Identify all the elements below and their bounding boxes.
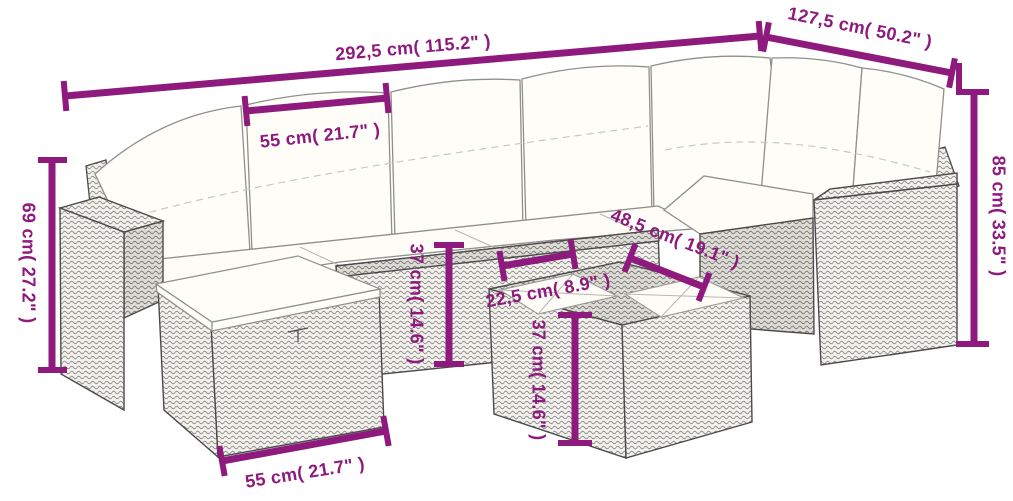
dim-arm-height-label: 69 cm( 27.2" ) (18, 203, 39, 324)
dim-seat-height-label: 37 cm( 14.6" ) (406, 244, 427, 365)
sofa-line-art (0, 0, 1013, 501)
dim-total-height-line (956, 63, 989, 344)
footstool (156, 256, 384, 457)
left-armrest (60, 197, 163, 410)
dim-table-height-label: 37 cm( 14.6" ) (528, 320, 549, 441)
right-armrest (814, 173, 957, 365)
product-dimension-diagram: 292,5 cm( 115.2" ) 127,5 cm( 50.2" ) 55 … (0, 0, 1013, 501)
dim-total-height-label: 85 cm( 33.5" ) (988, 156, 1009, 277)
